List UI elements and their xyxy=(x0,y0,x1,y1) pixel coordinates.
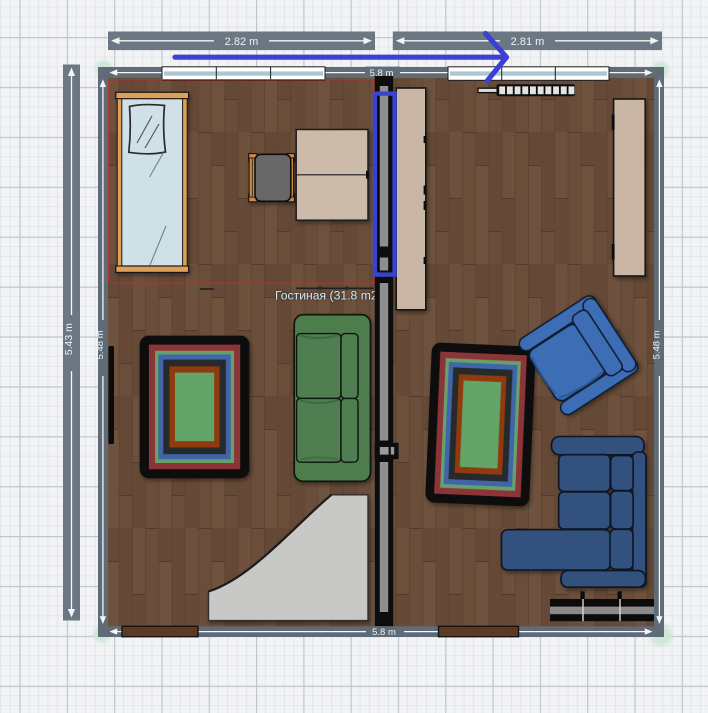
svg-text:2.81 m: 2.81 m xyxy=(511,36,545,48)
svg-text:5.48 m: 5.48 m xyxy=(95,330,106,359)
svg-text:5.43 m: 5.43 m xyxy=(63,323,75,355)
svg-text:2.82 m: 2.82 m xyxy=(225,36,259,48)
svg-text:5.48 m: 5.48 m xyxy=(652,330,663,359)
svg-text:Гостиная (31.8 m2: Гостиная (31.8 m2 xyxy=(275,288,378,302)
svg-text:5.8 m: 5.8 m xyxy=(372,627,396,638)
